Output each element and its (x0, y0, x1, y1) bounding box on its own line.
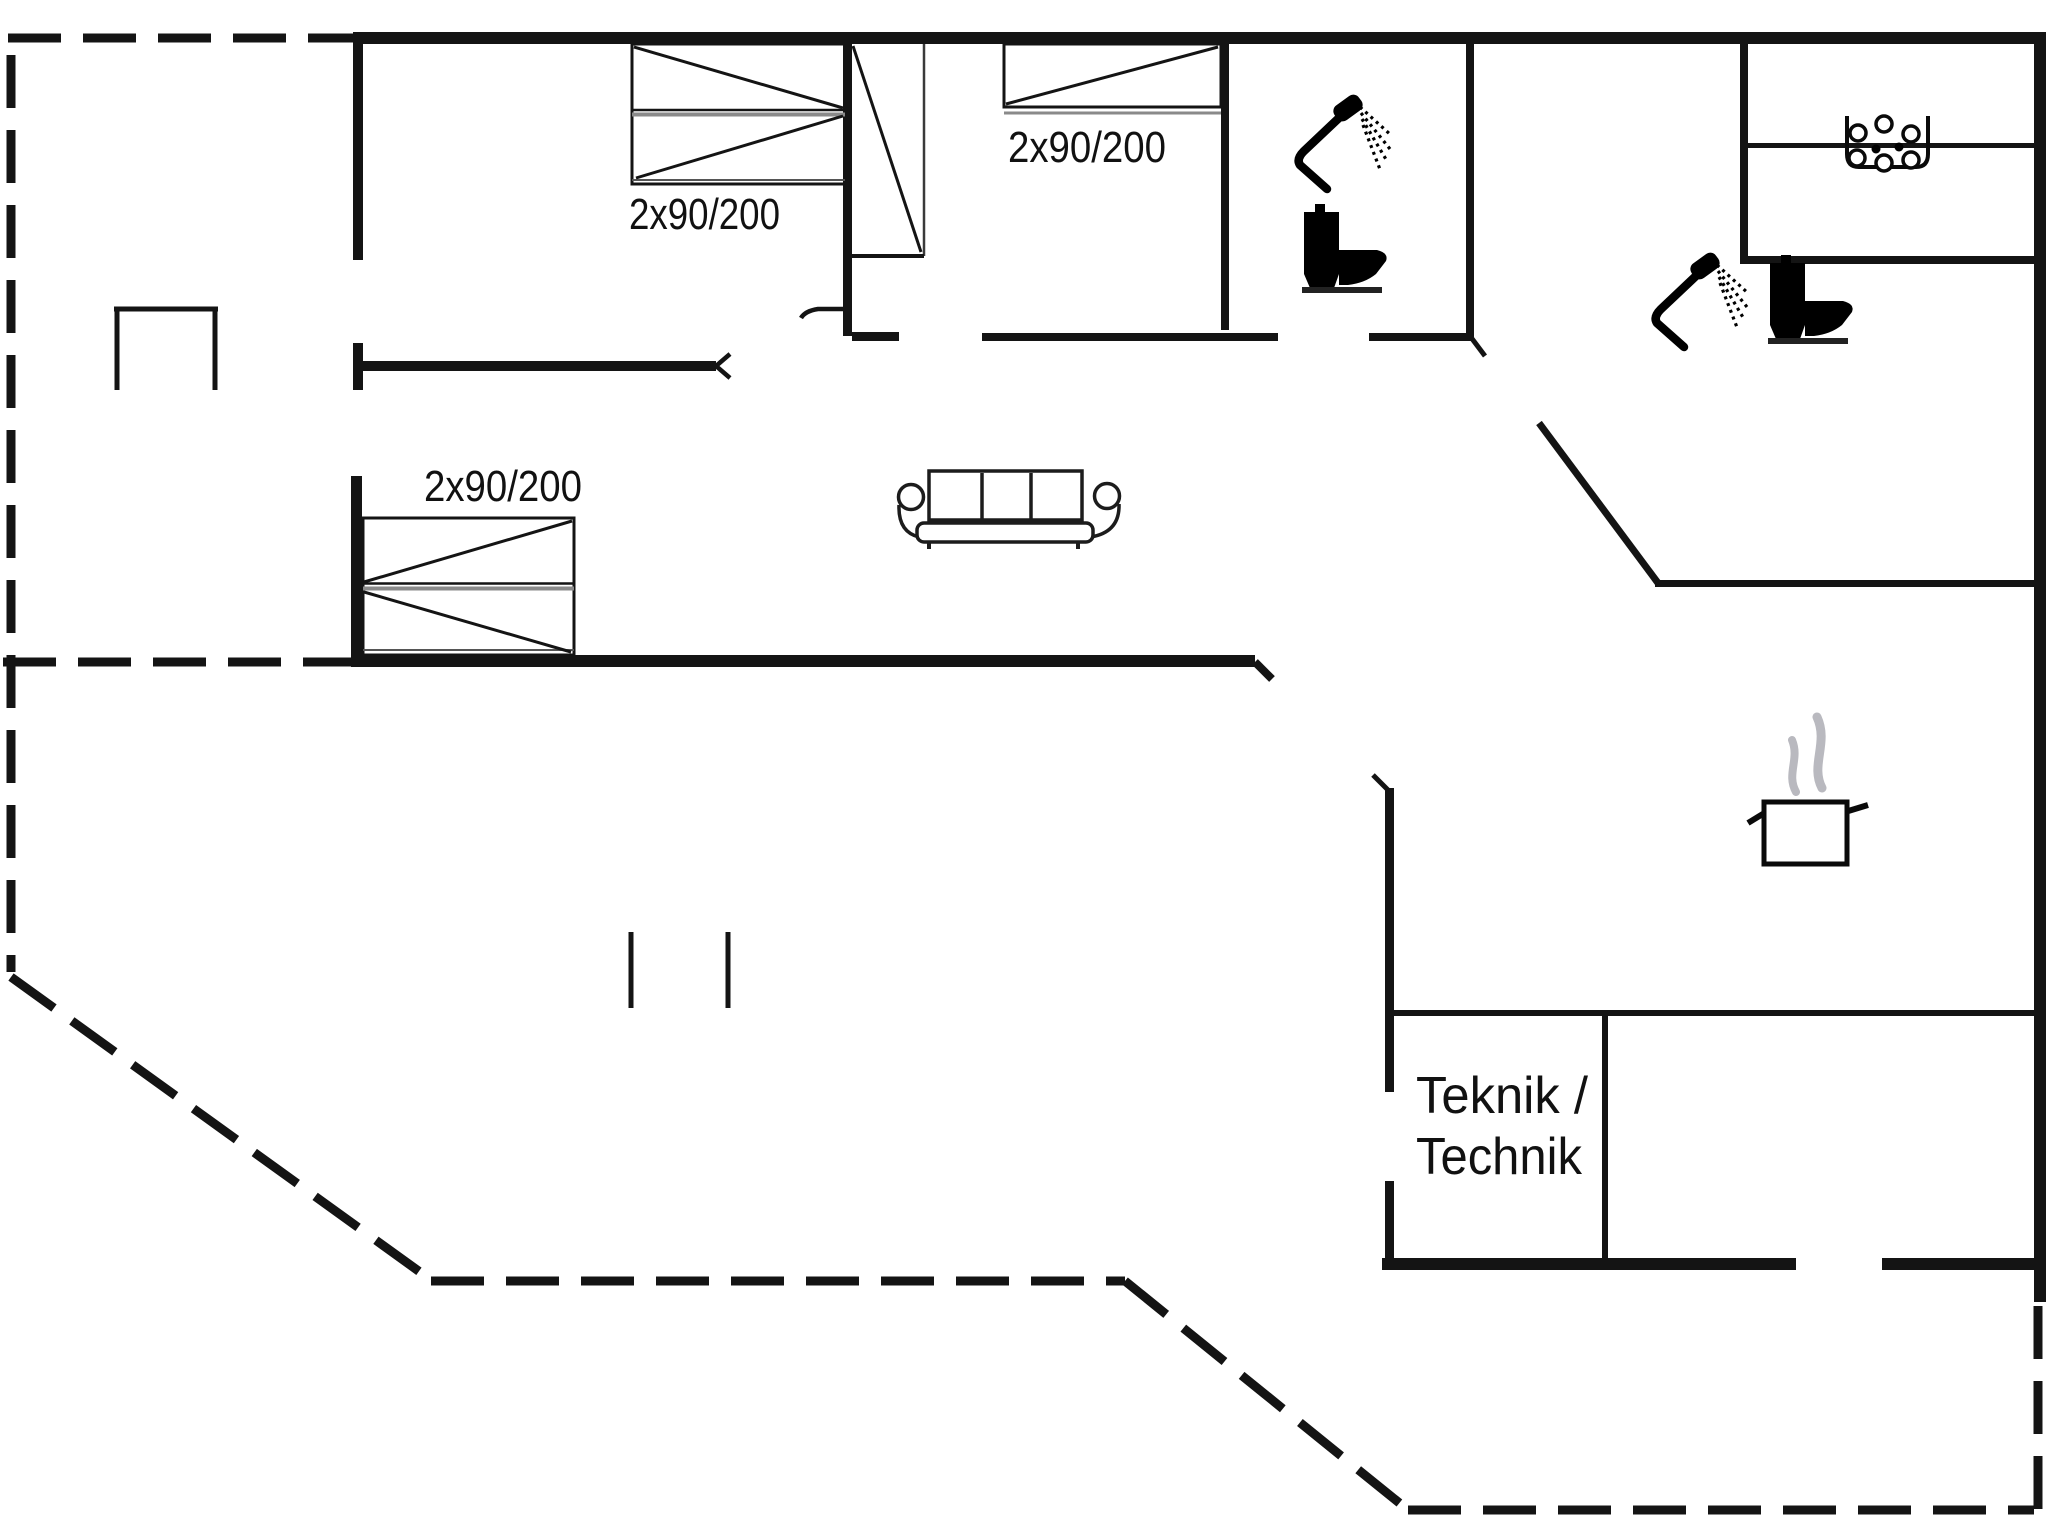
svg-text:Technik: Technik (1416, 1128, 1583, 1186)
svg-text:2x90/200: 2x90/200 (1008, 123, 1166, 172)
svg-text:2x90/200: 2x90/200 (424, 462, 582, 511)
svg-text:2x90/200: 2x90/200 (629, 190, 780, 239)
svg-text:Teknik /: Teknik / (1416, 1067, 1589, 1125)
